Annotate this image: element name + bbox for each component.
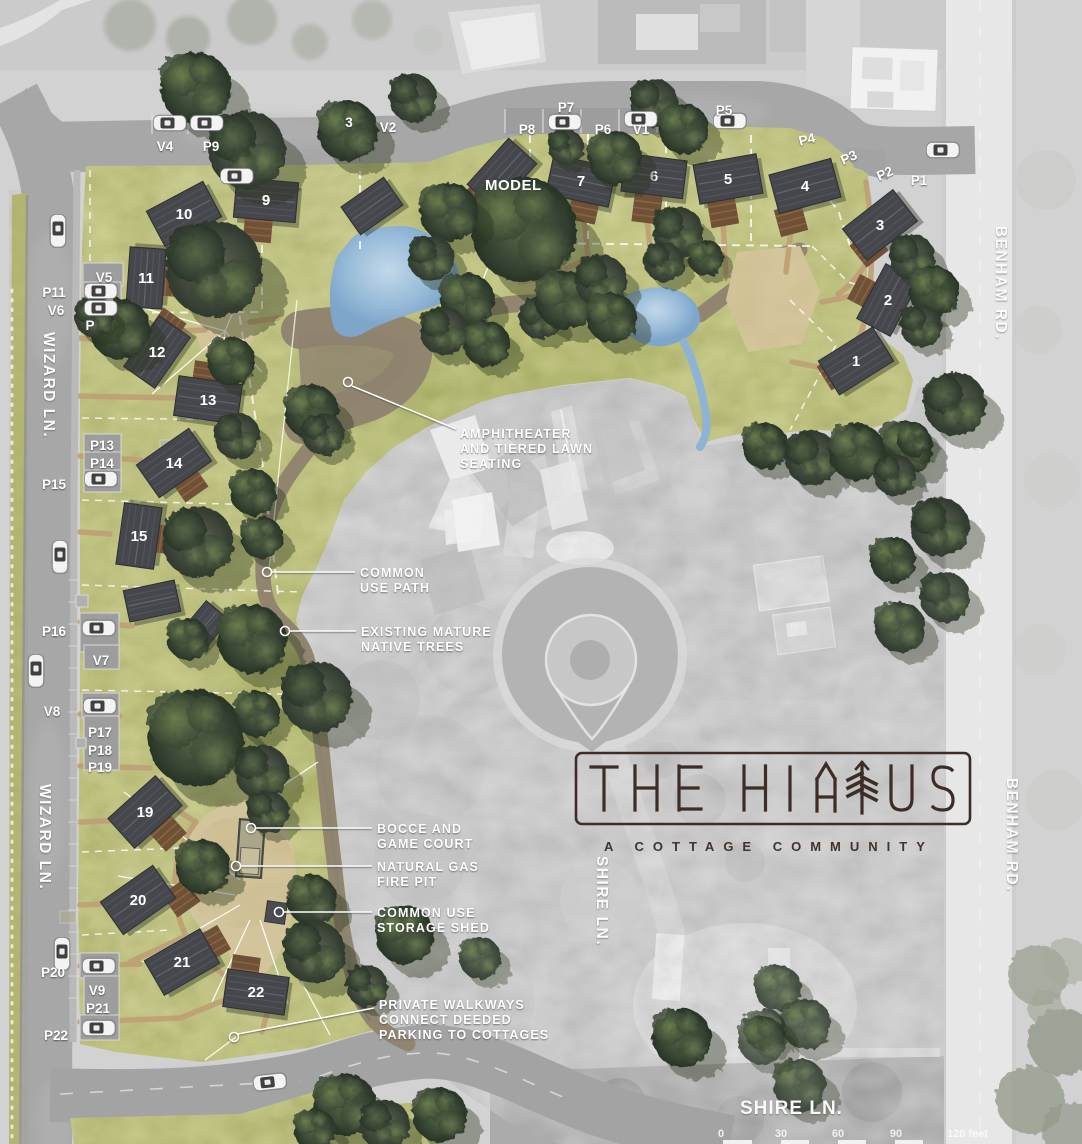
svg-text:NATIVE TREES: NATIVE TREES xyxy=(361,640,464,654)
svg-text:AMPHITHEATER: AMPHITHEATER xyxy=(460,427,572,441)
svg-text:COMMON USE: COMMON USE xyxy=(377,906,476,920)
svg-text:P21: P21 xyxy=(86,1001,111,1016)
svg-text:PARKING TO COTTAGES: PARKING TO COTTAGES xyxy=(379,1028,549,1042)
svg-text:P18: P18 xyxy=(88,743,113,758)
svg-text:P5: P5 xyxy=(716,103,733,118)
svg-text:10: 10 xyxy=(176,206,193,223)
svg-text:V8: V8 xyxy=(44,704,61,719)
svg-text:4: 4 xyxy=(801,178,810,195)
svg-text:SHIRE LN.: SHIRE LN. xyxy=(593,856,610,946)
svg-text:5: 5 xyxy=(724,171,732,188)
svg-text:P16: P16 xyxy=(42,624,67,639)
svg-text:STORAGE SHED: STORAGE SHED xyxy=(377,921,490,935)
svg-text:V6: V6 xyxy=(48,303,65,318)
svg-text:P: P xyxy=(85,318,94,333)
svg-text:MODEL: MODEL xyxy=(485,177,542,194)
svg-text:SHIRE LN.: SHIRE LN. xyxy=(740,1098,843,1119)
svg-text:P13: P13 xyxy=(90,438,115,453)
svg-text:20: 20 xyxy=(130,892,147,909)
svg-text:P22: P22 xyxy=(44,1028,68,1043)
svg-text:WIZARD LN.: WIZARD LN. xyxy=(36,784,53,890)
svg-text:V7: V7 xyxy=(93,653,110,668)
svg-text:120 feet: 120 feet xyxy=(947,1128,988,1140)
svg-text:BENHAM RD.: BENHAM RD. xyxy=(1003,778,1020,892)
svg-text:V5: V5 xyxy=(96,270,113,285)
svg-text:P9: P9 xyxy=(203,139,220,154)
svg-text:COMMON: COMMON xyxy=(360,566,425,580)
svg-text:P20: P20 xyxy=(41,965,65,980)
svg-text:BOCCE AND: BOCCE AND xyxy=(377,822,462,836)
svg-text:19: 19 xyxy=(137,804,154,821)
svg-text:3: 3 xyxy=(345,115,353,130)
svg-text:P6: P6 xyxy=(595,122,612,137)
svg-text:13: 13 xyxy=(200,392,217,409)
svg-text:12: 12 xyxy=(149,344,166,361)
svg-text:NATURAL GAS: NATURAL GAS xyxy=(377,860,479,874)
svg-text:60: 60 xyxy=(832,1128,844,1140)
svg-text:EXISTING MATURE: EXISTING MATURE xyxy=(361,625,492,639)
svg-text:P19: P19 xyxy=(88,760,112,775)
svg-text:7: 7 xyxy=(577,173,585,190)
svg-text:P17: P17 xyxy=(88,725,112,740)
svg-text:USE PATH: USE PATH xyxy=(360,581,430,595)
svg-text:P7: P7 xyxy=(558,100,575,115)
svg-text:FIRE PIT: FIRE PIT xyxy=(377,875,437,889)
svg-text:V1: V1 xyxy=(633,122,650,137)
svg-text:CONNECT DEEDED: CONNECT DEEDED xyxy=(379,1013,512,1027)
svg-text:9: 9 xyxy=(262,192,270,209)
svg-text:2: 2 xyxy=(884,292,892,309)
svg-text:SEATING: SEATING xyxy=(460,457,522,471)
svg-text:A COTTAGE COMMUNITY: A COTTAGE COMMUNITY xyxy=(604,839,934,854)
svg-text:1: 1 xyxy=(852,353,860,370)
svg-text:V2: V2 xyxy=(380,120,397,135)
svg-text:V4: V4 xyxy=(157,139,174,154)
svg-text:15: 15 xyxy=(131,528,148,545)
svg-text:AND TIERED LAWN: AND TIERED LAWN xyxy=(460,442,593,456)
svg-text:WIZARD LN.: WIZARD LN. xyxy=(40,332,57,438)
svg-text:14: 14 xyxy=(166,455,183,472)
svg-text:P1: P1 xyxy=(911,173,928,188)
svg-text:GAME COURT: GAME COURT xyxy=(377,837,473,851)
svg-text:21: 21 xyxy=(174,954,191,971)
svg-text:P15: P15 xyxy=(42,477,67,492)
svg-text:P8: P8 xyxy=(519,122,536,137)
svg-text:0: 0 xyxy=(718,1128,724,1140)
svg-text:P14: P14 xyxy=(90,456,115,471)
svg-text:90: 90 xyxy=(890,1128,902,1140)
svg-text:V9: V9 xyxy=(89,983,106,998)
svg-text:22: 22 xyxy=(248,984,265,1001)
svg-text:P11: P11 xyxy=(42,285,66,300)
svg-text:30: 30 xyxy=(775,1128,787,1140)
svg-text:11: 11 xyxy=(138,270,154,287)
svg-text:PRIVATE WALKWAYS: PRIVATE WALKWAYS xyxy=(379,998,525,1012)
svg-text:3: 3 xyxy=(876,217,884,234)
svg-text:BENHAM RD.: BENHAM RD. xyxy=(992,226,1009,340)
